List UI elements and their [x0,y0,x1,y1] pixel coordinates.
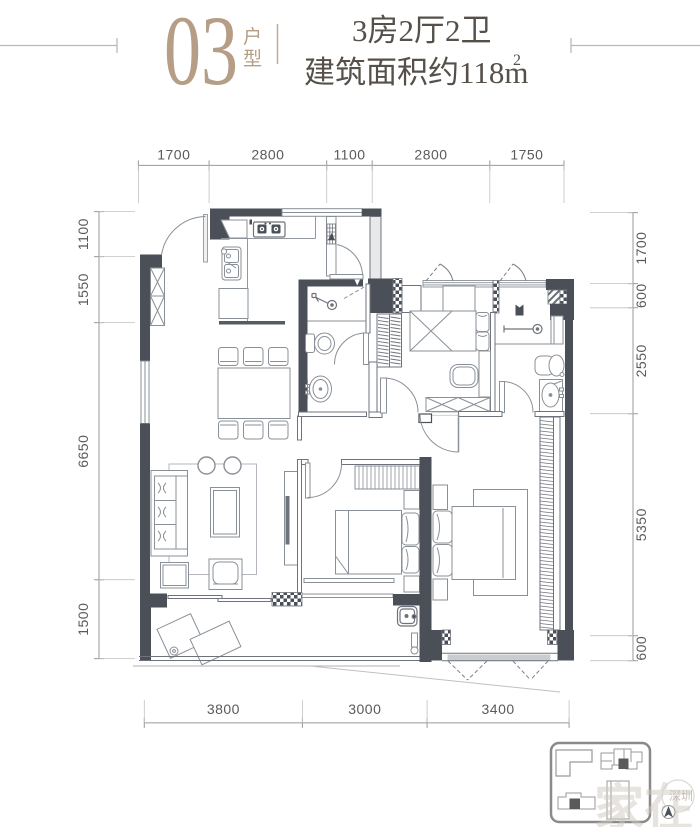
svg-text:2: 2 [513,52,521,69]
svg-text:5350: 5350 [633,508,649,541]
svg-text:1750: 1750 [510,147,543,163]
svg-text:3000: 3000 [348,701,381,717]
svg-text:2550: 2550 [633,344,649,377]
svg-text:家在: 家在 [594,780,694,827]
svg-text:1700: 1700 [157,147,190,163]
svg-text:2800: 2800 [414,147,447,163]
svg-text:3800: 3800 [207,701,240,717]
svg-text:600: 600 [633,283,649,308]
svg-text:户: 户 [243,26,262,48]
svg-text:6650: 6650 [75,435,91,468]
svg-text:600: 600 [633,636,649,661]
svg-text:1500: 1500 [75,603,91,636]
svg-text:深圳: 深圳 [669,789,693,803]
svg-text:建筑面积约118m: 建筑面积约118m [304,55,528,90]
svg-text:2800: 2800 [251,147,284,163]
svg-text:型: 型 [243,48,262,70]
svg-text:03: 03 [164,0,238,106]
svg-text:3400: 3400 [482,701,515,717]
svg-text:3房2厅2卫: 3房2厅2卫 [352,13,492,48]
svg-text:1700: 1700 [633,232,649,265]
svg-text:1550: 1550 [75,273,91,306]
svg-text:1100: 1100 [333,147,365,163]
svg-text:1100: 1100 [75,218,91,250]
